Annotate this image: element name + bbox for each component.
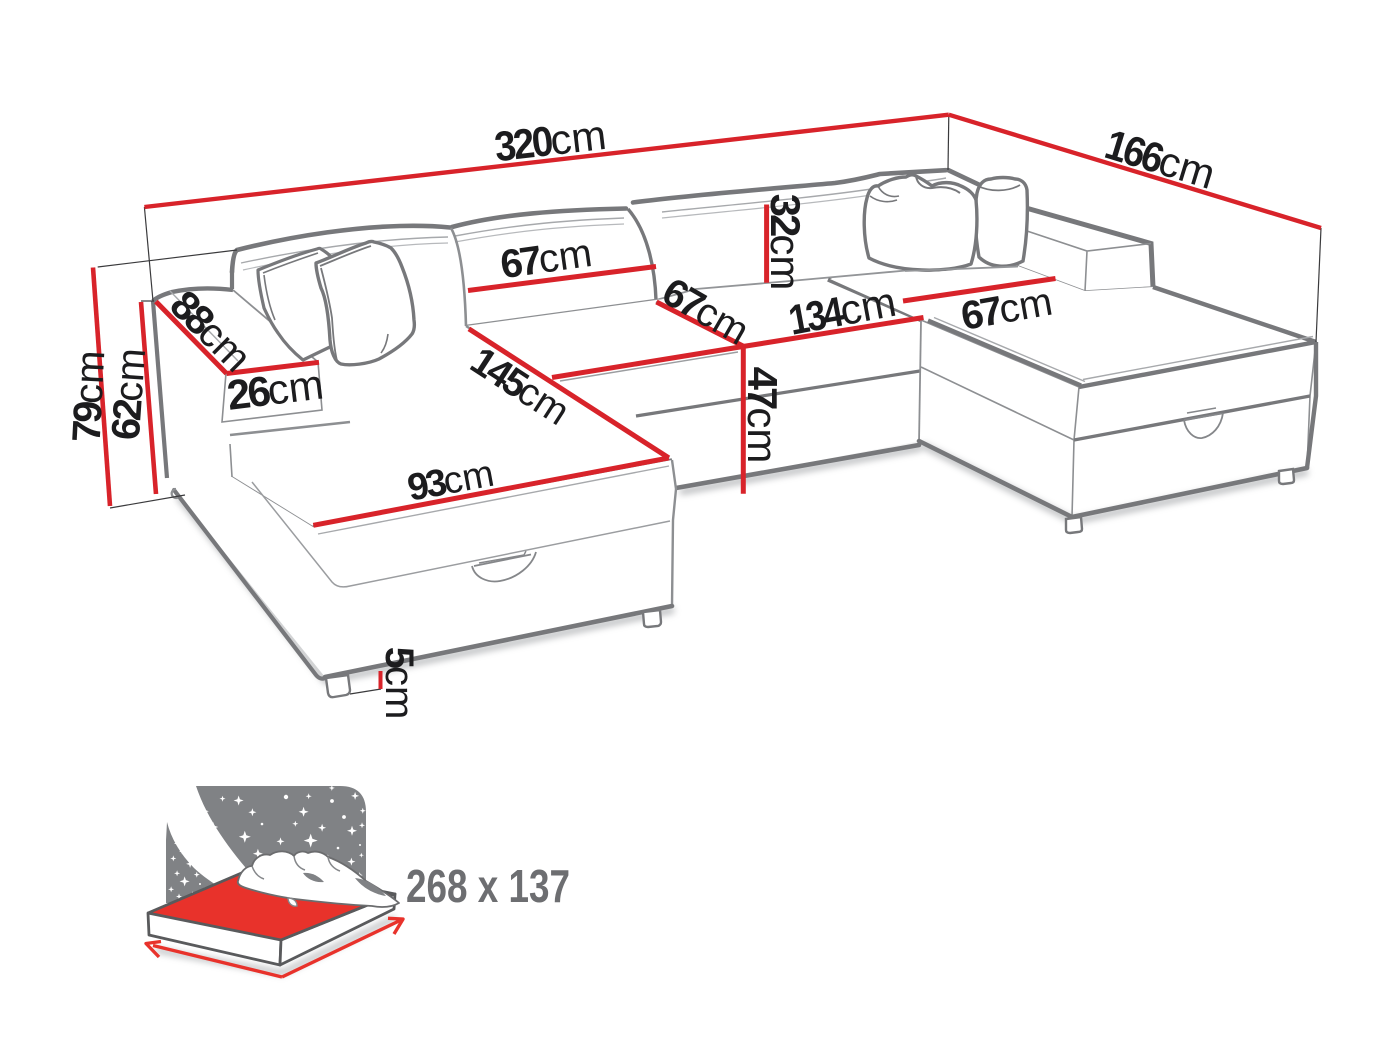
svg-text:62cm: 62cm	[104, 347, 154, 442]
svg-text:320cm: 320cm	[492, 111, 609, 171]
svg-text:268 x 137: 268 x 137	[406, 860, 570, 912]
svg-text:5cm: 5cm	[377, 647, 421, 720]
svg-text:47cm: 47cm	[739, 367, 786, 464]
svg-text:32cm: 32cm	[762, 194, 809, 291]
svg-text:166cm: 166cm	[1100, 120, 1221, 198]
